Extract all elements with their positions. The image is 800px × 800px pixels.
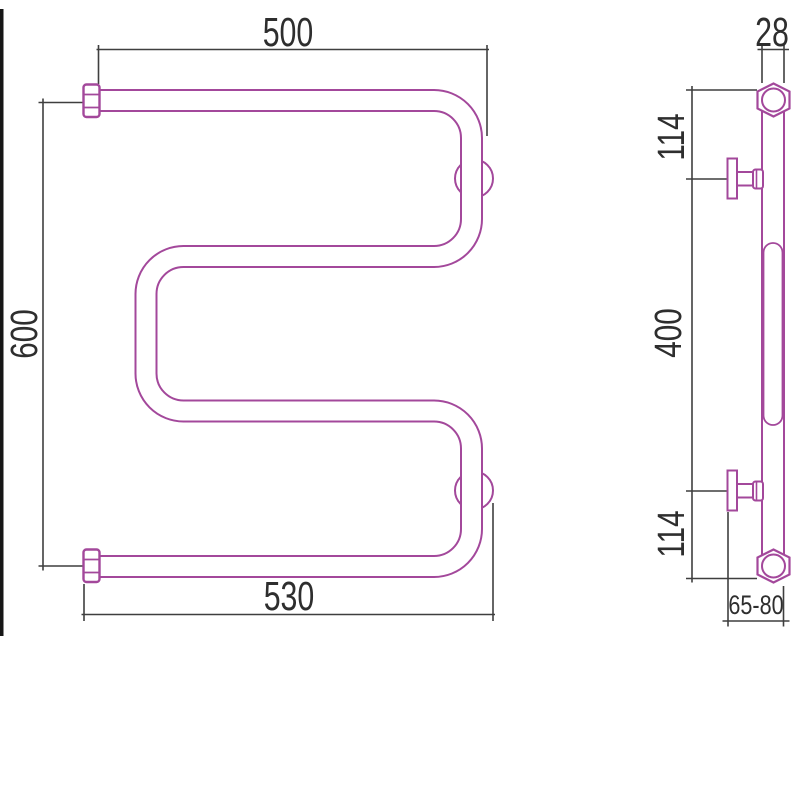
technical-drawing-page: 500 530 600 28 114 400 114 65-80 bbox=[0, 0, 800, 800]
dim-label-height: 600 bbox=[4, 309, 46, 358]
dim-label-top-spacing: 114 bbox=[651, 113, 693, 160]
bracket-knob bbox=[753, 482, 763, 501]
hex-fitting-body bbox=[84, 85, 100, 118]
dim-label-pipe-width: 28 bbox=[755, 8, 789, 55]
wall-bracket-bottom bbox=[728, 471, 764, 511]
side-view-towel-rail bbox=[728, 84, 790, 583]
bracket-stem bbox=[737, 484, 754, 498]
front-view-towel-rail bbox=[84, 85, 494, 583]
s-tube-core bbox=[97, 101, 472, 567]
bracket-knob bbox=[753, 170, 763, 189]
dim-label-wall-offset: 65-80 bbox=[728, 591, 783, 621]
bracket-stem bbox=[737, 172, 754, 186]
front-view-dimensions bbox=[39, 45, 496, 621]
side-pipe bbox=[762, 100, 784, 566]
bracket-flange bbox=[728, 159, 738, 199]
wall-bracket-top bbox=[728, 159, 764, 199]
hex-nut-top bbox=[758, 84, 790, 117]
hex-fitting-bottom-left bbox=[84, 550, 100, 583]
hex-fitting-top-left bbox=[84, 85, 100, 118]
dim-label-bottom-width: 530 bbox=[264, 572, 315, 619]
hex-fitting-body bbox=[84, 550, 100, 583]
towel-rail-drawing-canvas: 500 530 600 28 114 400 114 65-80 bbox=[0, 0, 800, 800]
bracket-flange bbox=[728, 471, 738, 511]
dim-label-bracket-spacing: 400 bbox=[648, 308, 690, 357]
dim-label-bottom-spacing: 114 bbox=[651, 510, 693, 557]
dim-label-top-width: 500 bbox=[263, 8, 314, 55]
hex-nut-bottom bbox=[758, 550, 790, 583]
